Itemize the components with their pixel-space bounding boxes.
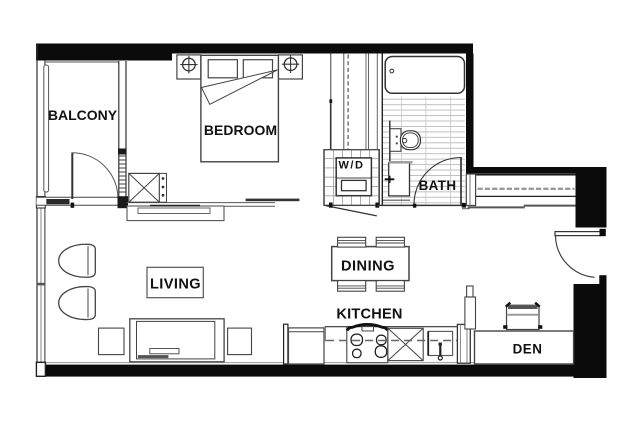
svg-text:DINING: DINING (341, 259, 395, 275)
svg-text:BEDROOM: BEDROOM (204, 122, 277, 138)
svg-text:DEN: DEN (513, 342, 543, 357)
svg-text:KITCHEN: KITCHEN (336, 307, 402, 323)
svg-text:BALCONY: BALCONY (48, 107, 118, 123)
svg-text:BATH: BATH (419, 178, 457, 193)
svg-text:LIVING: LIVING (150, 277, 201, 293)
svg-text:W/D: W/D (339, 160, 365, 172)
